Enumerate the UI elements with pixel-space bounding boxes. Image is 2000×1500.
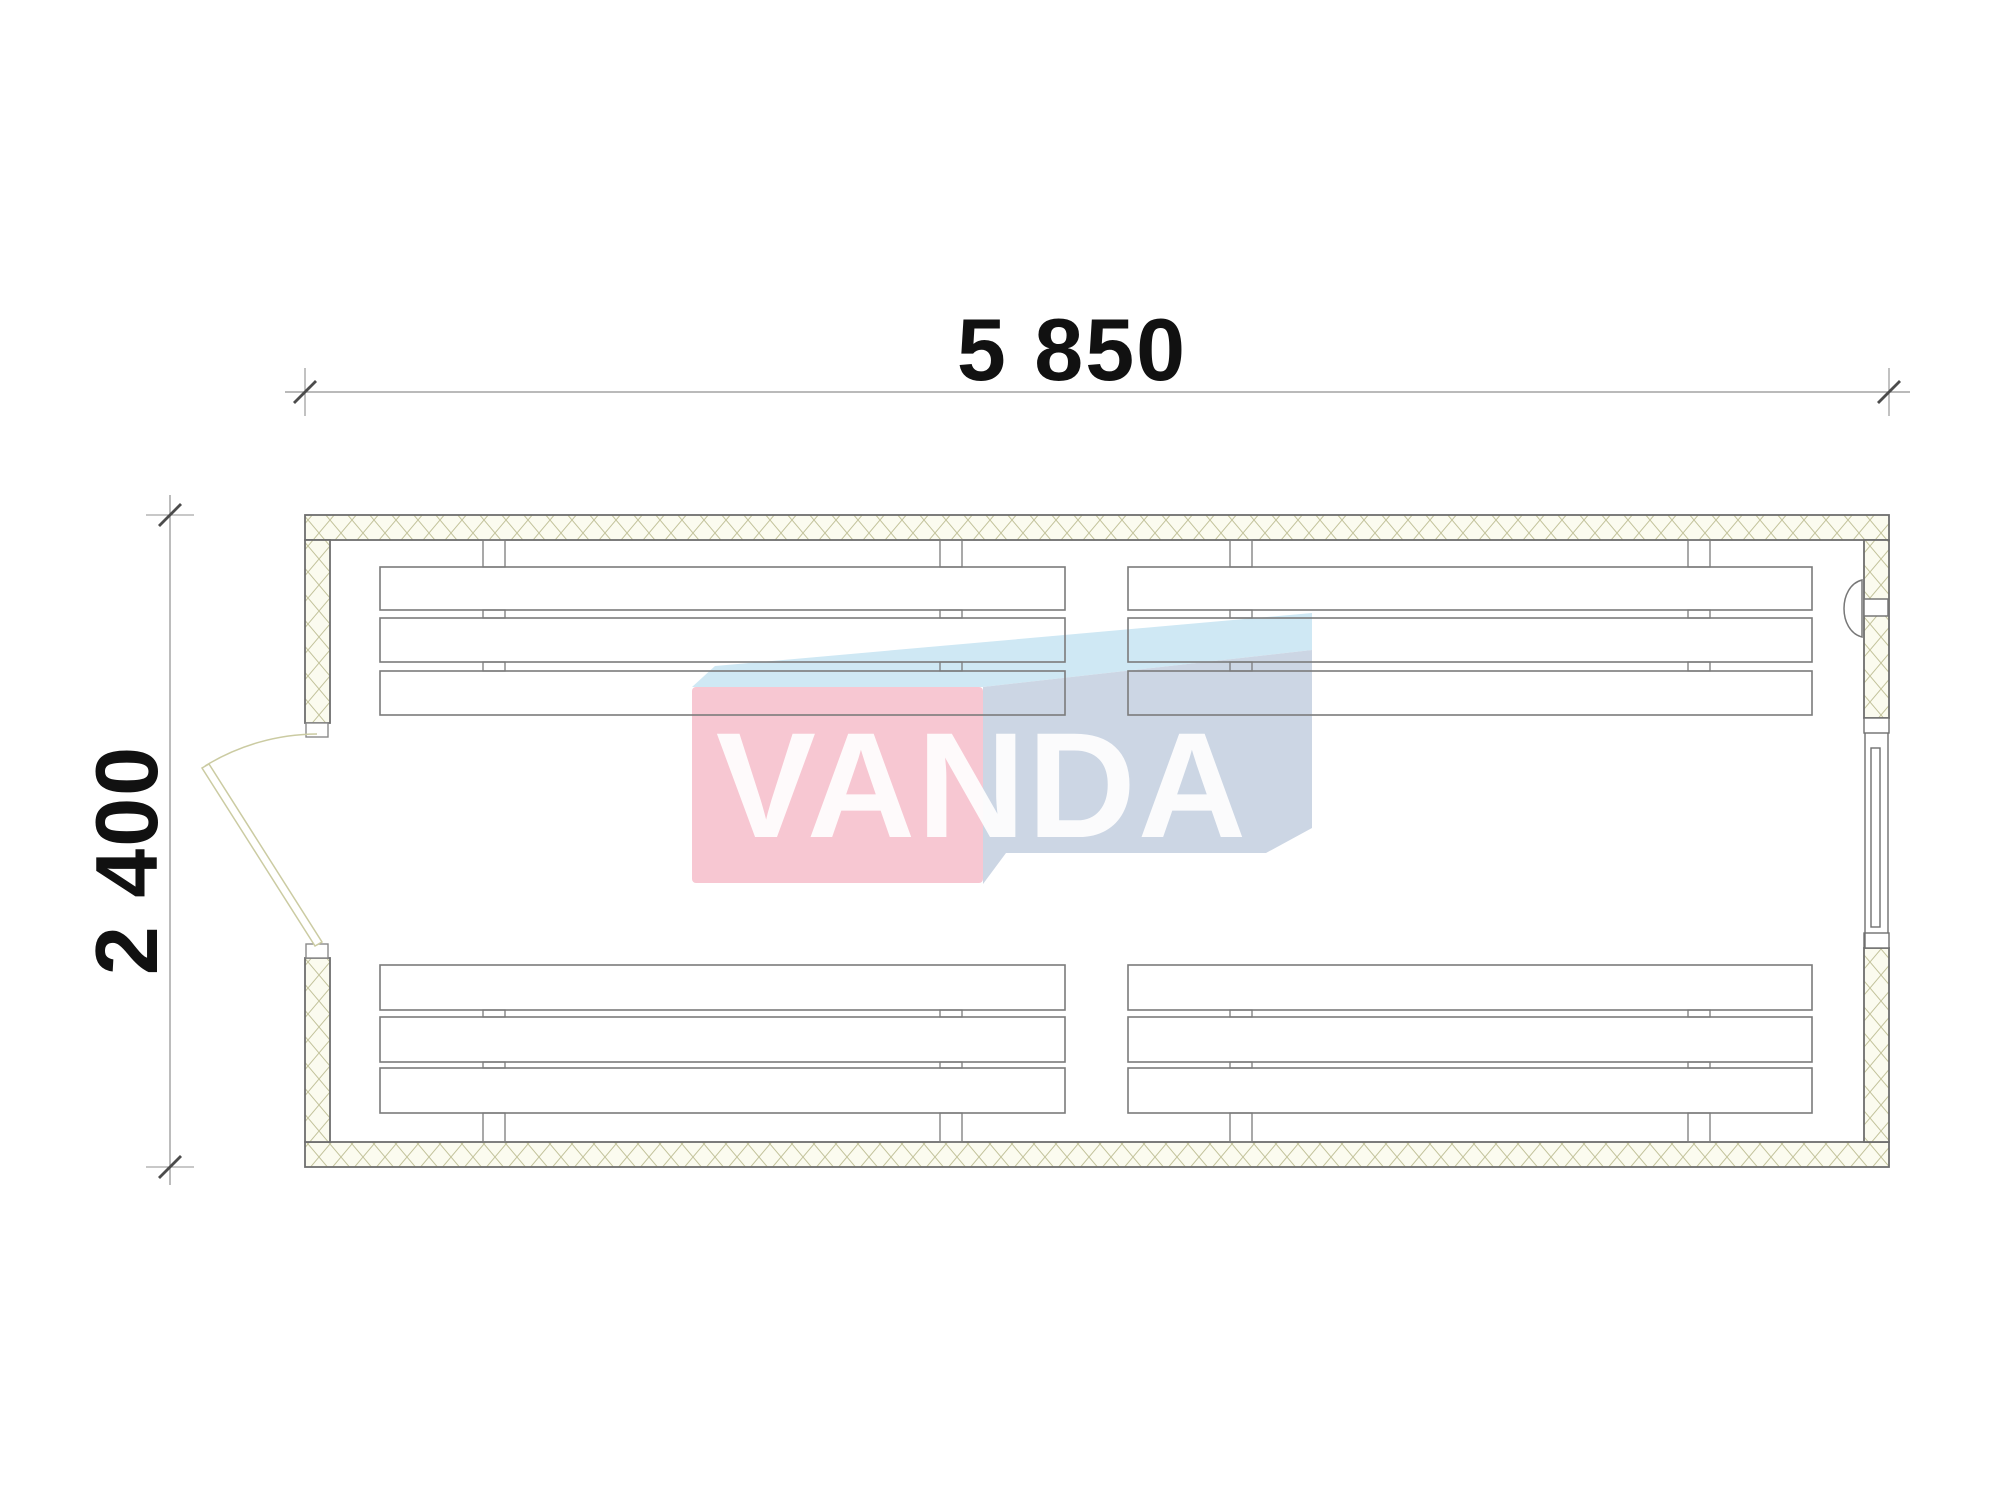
bench-slat — [1128, 567, 1812, 610]
bench-slat — [380, 1068, 1065, 1113]
bench-post — [940, 1062, 962, 1068]
window-jamb-lower — [1864, 933, 1889, 948]
bench-top-right — [1128, 567, 1812, 715]
bench-post — [1230, 1062, 1252, 1068]
wall-right-upper — [1864, 540, 1889, 718]
dimension-height-label: 2 400 — [77, 745, 176, 975]
bench-post — [1688, 540, 1710, 567]
bench-post — [483, 1062, 505, 1068]
bench-post — [940, 540, 962, 567]
bench-slat — [380, 671, 1065, 715]
bench-post — [1688, 1010, 1710, 1017]
wall-bottom — [305, 1142, 1889, 1167]
bench-slat — [380, 567, 1065, 610]
benches — [380, 540, 1812, 1142]
bench-slat — [380, 618, 1065, 662]
vent-duct — [1864, 599, 1888, 616]
bench-slat — [380, 1017, 1065, 1062]
bench-post — [483, 610, 505, 618]
wall-left-upper — [305, 540, 330, 723]
bench-post — [483, 540, 505, 567]
floor-plan: 5 850 2 400 — [0, 0, 2000, 1500]
dimension-width-label: 5 850 — [957, 300, 1187, 399]
bench-post — [1688, 1113, 1710, 1142]
bench-post — [1230, 1010, 1252, 1017]
wall-right-lower — [1864, 948, 1889, 1142]
walls — [305, 515, 1889, 1167]
window — [1864, 718, 1889, 948]
bench-post — [940, 1113, 962, 1142]
bench-post — [1688, 662, 1710, 671]
bench-post — [1230, 662, 1252, 671]
bench-slat — [1128, 965, 1812, 1010]
bench-slat — [1128, 671, 1812, 715]
wall-top — [305, 515, 1889, 540]
bench-post — [1230, 540, 1252, 567]
bench-post — [483, 662, 505, 671]
bench-post — [1688, 1062, 1710, 1068]
bench-slat — [380, 965, 1065, 1010]
dimension-height: 2 400 — [77, 495, 194, 1185]
bench-post — [1230, 610, 1252, 618]
door-swing-arc — [205, 734, 317, 766]
vent-knob — [1844, 580, 1862, 637]
bench-post — [1230, 1113, 1252, 1142]
door-jamb-lower — [306, 944, 328, 958]
drawing-canvas: VANDA — [0, 0, 2000, 1500]
door-leaf — [202, 764, 322, 946]
bench-bottom-left — [380, 965, 1065, 1113]
bench-post — [1688, 610, 1710, 618]
bench-top-left — [380, 567, 1065, 715]
bench-post — [940, 610, 962, 618]
bench-supports-top — [483, 540, 1710, 671]
wall-left-lower — [305, 958, 330, 1142]
bench-slat — [1128, 618, 1812, 662]
window-glass — [1871, 748, 1880, 927]
bench-slat — [1128, 1068, 1812, 1113]
bench-post — [940, 662, 962, 671]
bench-bottom-right — [1128, 965, 1812, 1113]
bench-post — [483, 1010, 505, 1017]
dimension-width: 5 850 — [285, 300, 1910, 416]
bench-slat — [1128, 1017, 1812, 1062]
door — [202, 723, 328, 958]
bench-supports-bottom — [483, 1010, 1710, 1142]
bench-post — [940, 1010, 962, 1017]
window-jamb-upper — [1864, 718, 1889, 733]
bench-post — [483, 1113, 505, 1142]
